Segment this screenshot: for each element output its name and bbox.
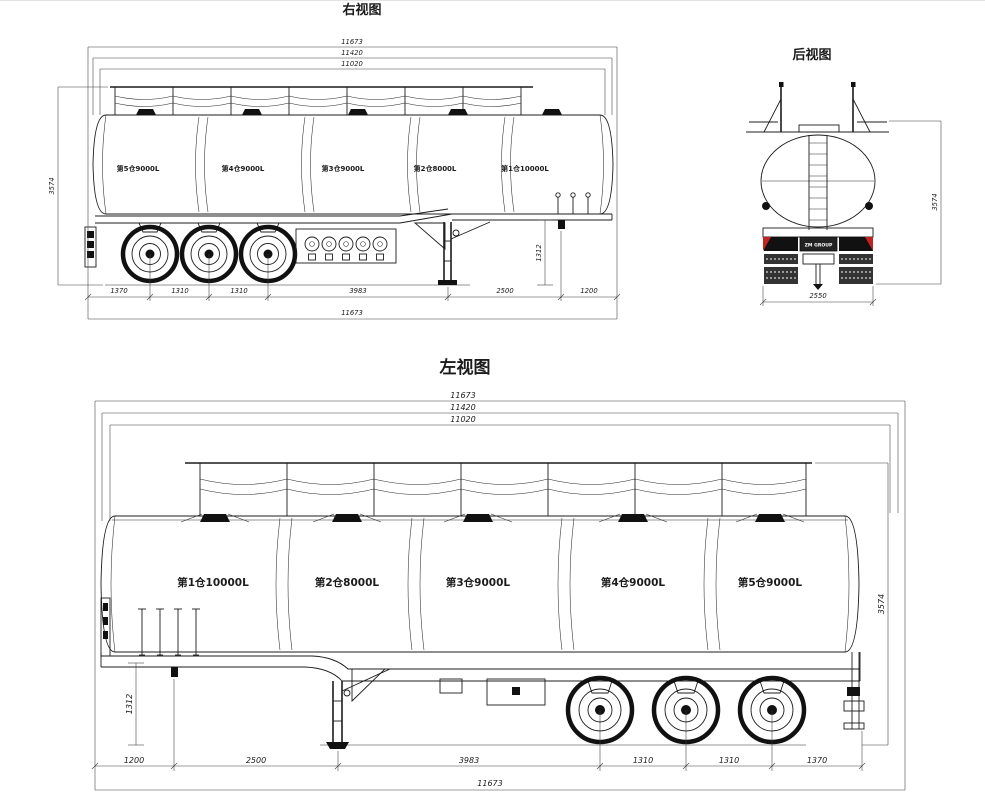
dim-label: 1200 [124,756,144,765]
dim-label: 3983 [349,287,366,295]
left-bottom-dimensions: 1200 2500 3983 1310 1310 1370 11673 [92,401,905,790]
compartment-label: 第5仓9000L [738,576,803,589]
dim-label: 11673 [341,309,363,317]
dim-label: 3574 [931,193,939,210]
dim-label: 11673 [341,38,363,46]
left-handrail [112,463,848,520]
dim-label: 1370 [110,287,127,295]
dim-label: 11020 [341,60,363,68]
dim-label: 1310 [230,287,247,295]
drawing-canvas: 右视图 11673 11420 11020 [0,0,985,807]
compartment-label: 第3仓9000L [446,576,511,589]
view-rear-title: 后视图 [792,47,831,63]
dim-label: 1200 [580,287,597,295]
right-handrail [110,87,533,115]
right-top-dimensions: 11673 11420 11020 [88,38,617,115]
compartment-label: 第4仓9000L [601,576,666,589]
left-dimension-height: 1312 3574 [125,463,888,745]
left-front-fittings [101,598,200,656]
compartment-label: 第1仓10000L [177,576,249,589]
dim-label: 3983 [459,756,479,765]
right-tank: 第5仓9000L 第4仓9000L 第3仓9000L 第2仓8000L 第1仓1… [93,109,613,214]
left-tank: 第1仓10000L 第2仓8000L 第3仓9000L 第4仓9000L 第5仓… [101,514,859,652]
dim-label: 2500 [496,287,513,295]
dim-label: 11020 [450,415,475,424]
dim-label: 1370 [807,756,827,765]
view-right: 右视图 11673 11420 11020 [48,2,620,319]
compartment-label: 第4仓9000L [222,164,265,173]
compartment-label: 第5仓9000L [117,164,160,173]
right-support-leg [415,222,490,285]
dim-label: 11420 [341,49,363,57]
left-rear-bumper [844,652,864,729]
dim-label: 1310 [633,756,653,765]
right-chassis [85,193,612,285]
dim-label: 1312 [535,244,543,261]
right-valve-box [296,229,396,263]
dim-label: 3574 [877,594,886,614]
rear-bumper: ZM GROUP [763,228,873,290]
dim-label: 2500 [246,756,266,765]
dim-label: 11420 [450,403,475,412]
rear-handrail [746,82,889,132]
view-right-title: 右视图 [341,2,381,18]
dim-label: 1310 [171,287,188,295]
rear-tank [761,135,875,230]
dim-label: 11673 [477,779,502,788]
compartment-label: 第2仓8000L [315,576,380,589]
brand-plate: ZM GROUP [805,243,833,249]
compartment-label: 第2仓8000L [414,164,457,173]
dim-label: 2550 [809,292,826,300]
compartment-label: 第1仓10000L [501,164,549,173]
compartment-label: 第3仓9000L [322,164,365,173]
left-top-dimensions: 11673 11420 11020 [95,391,905,521]
dim-label: 11673 [450,391,475,400]
dim-label: 1310 [719,756,739,765]
technical-drawing: 右视图 11673 11420 11020 [0,1,985,807]
dim-label: 1312 [125,694,134,714]
view-rear: 后视图 ZM GROUP [746,47,941,306]
view-left-title: 左视图 [440,357,491,378]
dim-label: 3574 [48,177,56,194]
view-left: 左视图 11673 11420 11020 [92,357,905,790]
